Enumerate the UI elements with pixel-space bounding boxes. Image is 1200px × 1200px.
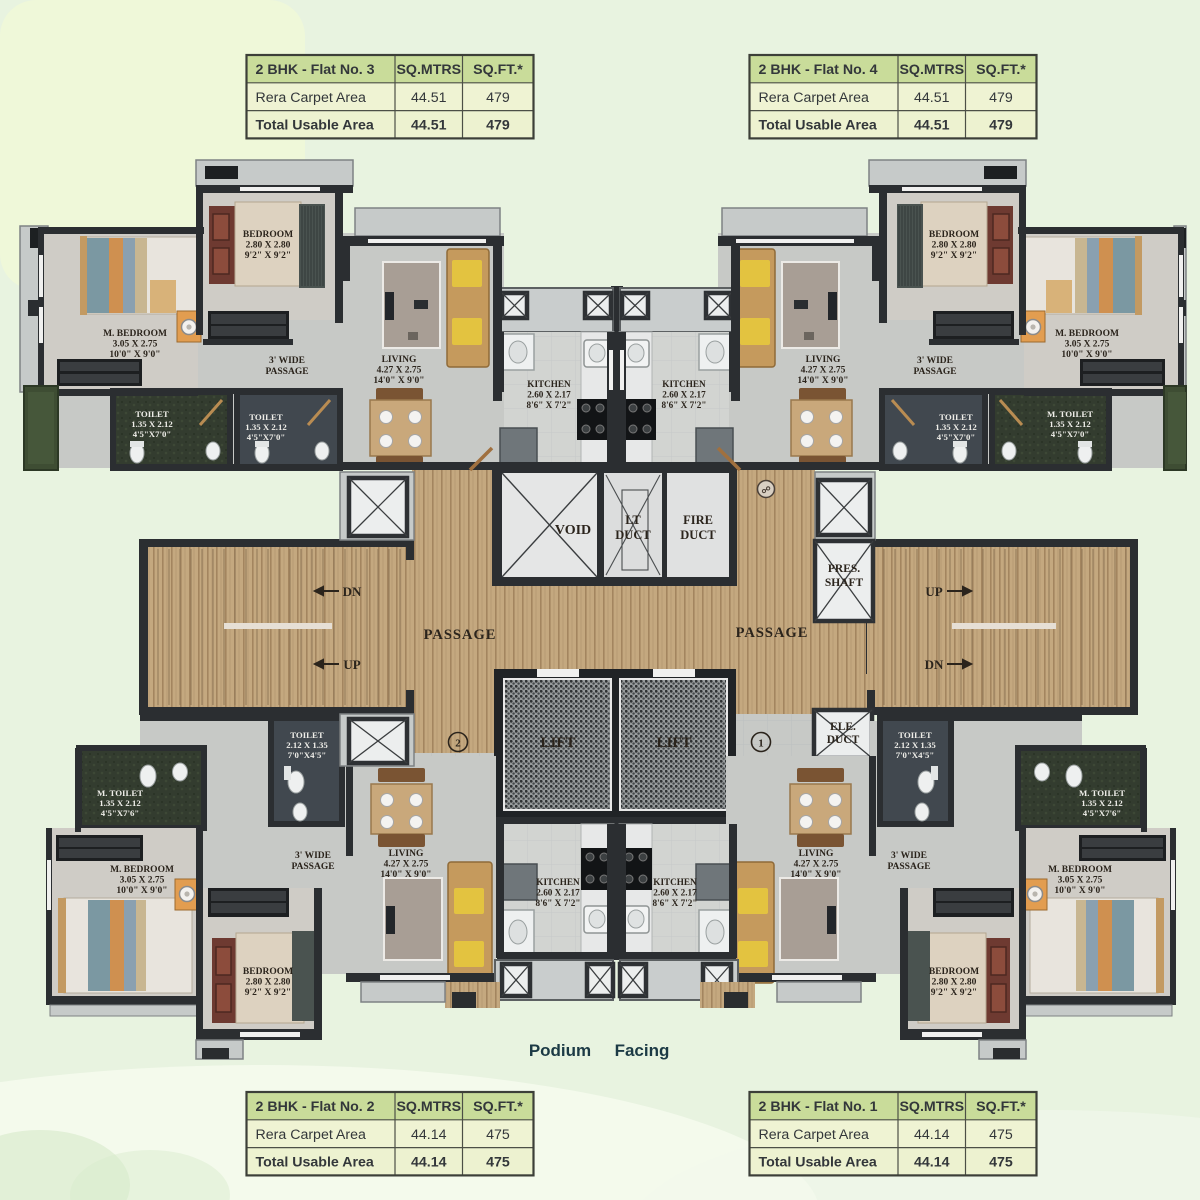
svg-text:7'0"X4'5": 7'0"X4'5" [288,750,327,760]
svg-text:VOID: VOID [555,523,591,538]
svg-text:10'0" X 9'0": 10'0" X 9'0" [109,350,160,360]
svg-text:10'0" X 9'0": 10'0" X 9'0" [116,886,167,896]
svg-text:9'2" X 9'2": 9'2" X 9'2" [931,251,977,261]
svg-text:PRES.: PRES. [828,563,860,575]
svg-text:LIVING: LIVING [389,849,424,859]
svg-text:3.05 X 2.75: 3.05 X 2.75 [120,876,165,886]
svg-text:3.05 X 2.75: 3.05 X 2.75 [113,340,158,350]
svg-text:Rera Carpet Area: Rera Carpet Area [256,90,367,106]
svg-text:M. TOILET: M. TOILET [97,788,143,798]
svg-text:2.80 X 2.80: 2.80 X 2.80 [246,241,291,251]
svg-text:1.35 X 2.12: 1.35 X 2.12 [935,422,977,432]
svg-text:TOILET: TOILET [290,730,324,740]
svg-text:PASSAGE: PASSAGE [913,367,956,377]
svg-text:3' WIDE: 3' WIDE [891,851,927,861]
svg-text:LT: LT [625,513,641,527]
svg-text:BEDROOM: BEDROOM [243,230,293,240]
svg-text:Rera Carpet Area: Rera Carpet Area [256,1127,367,1143]
svg-text:475: 475 [486,1127,510,1143]
svg-text:KITCHEN: KITCHEN [662,379,706,389]
svg-text:2.12 X 1.35: 2.12 X 1.35 [894,740,936,750]
svg-text:BEDROOM: BEDROOM [929,230,979,240]
svg-text:3' WIDE: 3' WIDE [295,851,331,861]
svg-text:SQ.MTRS: SQ.MTRS [396,62,461,78]
svg-text:TOILET: TOILET [898,730,932,740]
svg-text:SQ.FT.*: SQ.FT.* [976,1099,1026,1115]
svg-text:2 BHK - Flat No. 3: 2 BHK - Flat No. 3 [256,62,375,78]
svg-text:475: 475 [989,1127,1013,1143]
svg-text:PASSAGE: PASSAGE [424,627,497,643]
svg-text:M. TOILET: M. TOILET [1047,409,1093,419]
svg-text:LIVING: LIVING [799,849,834,859]
svg-text:2.80 X 2.80: 2.80 X 2.80 [932,978,977,988]
svg-text:4'5"X7'6": 4'5"X7'6" [1083,808,1122,818]
svg-text:KITCHEN: KITCHEN [536,877,580,887]
svg-text:2.80 X 2.80: 2.80 X 2.80 [932,241,977,251]
svg-text:10'0" X 9'0": 10'0" X 9'0" [1054,886,1105,896]
svg-text:M. BEDROOM: M. BEDROOM [1048,865,1112,875]
svg-text:Total Usable Area: Total Usable Area [256,1155,374,1171]
svg-text:3' WIDE: 3' WIDE [269,356,305,366]
svg-text:FIRE: FIRE [683,513,713,527]
svg-text:DN: DN [343,584,362,599]
svg-text:Rera Carpet Area: Rera Carpet Area [759,90,870,106]
svg-text:14'0" X 9'0": 14'0" X 9'0" [373,376,424,386]
svg-text:ELE.: ELE. [830,721,856,733]
svg-text:DUCT: DUCT [827,734,860,746]
svg-text:479: 479 [989,90,1013,106]
svg-text:2.60 X 2.17: 2.60 X 2.17 [527,390,571,400]
svg-text:44.14: 44.14 [914,1127,950,1143]
svg-text:LIVING: LIVING [382,355,417,365]
svg-text:SHAFT: SHAFT [825,577,864,589]
svg-text:PASSAGE: PASSAGE [887,862,930,872]
svg-text:3' WIDE: 3' WIDE [917,356,953,366]
svg-text:3.05 X 2.75: 3.05 X 2.75 [1058,876,1103,886]
svg-text:2 BHK - Flat No. 1: 2 BHK - Flat No. 1 [759,1099,878,1115]
svg-text:M. BEDROOM: M. BEDROOM [1055,329,1119,339]
svg-text:7'0"X4'5": 7'0"X4'5" [896,750,935,760]
svg-text:4'5"X7'0": 4'5"X7'0" [133,429,172,439]
svg-text:2.60 X 2.17: 2.60 X 2.17 [653,888,697,898]
svg-text:8'6" X 7'2": 8'6" X 7'2" [536,898,581,908]
svg-text:SQ.MTRS: SQ.MTRS [396,1099,461,1115]
svg-text:8'6" X 7'2": 8'6" X 7'2" [653,898,698,908]
svg-text:2.80 X 2.80: 2.80 X 2.80 [246,978,291,988]
svg-text:Total Usable Area: Total Usable Area [256,118,374,134]
svg-text:4'5"X7'0": 4'5"X7'0" [937,432,976,442]
svg-text:2 BHK - Flat No. 4: 2 BHK - Flat No. 4 [759,62,878,78]
svg-text:LIVING: LIVING [806,355,841,365]
svg-text:3.05 X 2.75: 3.05 X 2.75 [1065,340,1110,350]
svg-text:PASSAGE: PASSAGE [736,625,809,641]
svg-text:8'6" X 7'2": 8'6" X 7'2" [527,400,572,410]
svg-text:4.27 X 2.75: 4.27 X 2.75 [377,366,422,376]
svg-text:44.51: 44.51 [411,118,447,134]
svg-text:8'6" X 7'2": 8'6" X 7'2" [662,400,707,410]
svg-text:LIFT: LIFT [656,735,691,751]
svg-text:4.27 X 2.75: 4.27 X 2.75 [801,366,846,376]
svg-text:Total Usable Area: Total Usable Area [759,1155,877,1171]
svg-text:KITCHEN: KITCHEN [527,379,571,389]
svg-text:4.27 X 2.75: 4.27 X 2.75 [384,860,429,870]
svg-text:Facing: Facing [615,1041,670,1060]
svg-text:4'5"X7'6": 4'5"X7'6" [101,808,140,818]
svg-text:Podium: Podium [529,1041,591,1060]
svg-text:PASSAGE: PASSAGE [265,367,308,377]
svg-text:479: 479 [486,118,510,134]
svg-text:PASSAGE: PASSAGE [291,862,334,872]
svg-text:4.27 X 2.75: 4.27 X 2.75 [794,860,839,870]
svg-text:1.35 X 2.12: 1.35 X 2.12 [99,798,141,808]
svg-text:44.14: 44.14 [411,1127,447,1143]
svg-text:TOILET: TOILET [249,412,283,422]
svg-text:44.51: 44.51 [914,90,950,106]
svg-text:TOILET: TOILET [135,409,169,419]
svg-text:☍: ☍ [761,485,770,495]
svg-text:Total Usable Area: Total Usable Area [759,118,877,134]
svg-text:2 BHK - Flat No. 2: 2 BHK - Flat No. 2 [256,1099,375,1115]
svg-text:SQ.FT.*: SQ.FT.* [976,62,1026,78]
svg-text:2.60 X 2.17: 2.60 X 2.17 [536,888,580,898]
svg-text:DUCT: DUCT [615,528,651,542]
svg-text:DUCT: DUCT [680,528,716,542]
svg-text:475: 475 [989,1155,1013,1171]
svg-text:TOILET: TOILET [939,412,973,422]
svg-text:LIFT: LIFT [540,735,575,751]
svg-text:9'2" X 9'2": 9'2" X 9'2" [931,988,977,998]
svg-text:44.14: 44.14 [914,1155,950,1171]
svg-text:9'2" X 9'2": 9'2" X 9'2" [245,988,291,998]
svg-text:1.35 X 2.12: 1.35 X 2.12 [131,419,173,429]
svg-text:4'5"X7'0": 4'5"X7'0" [247,432,286,442]
svg-text:475: 475 [486,1155,510,1171]
svg-text:BEDROOM: BEDROOM [929,967,979,977]
svg-text:44.51: 44.51 [411,90,447,106]
svg-text:479: 479 [989,118,1013,134]
svg-text:1.35 X 2.12: 1.35 X 2.12 [1049,419,1091,429]
svg-text:UP: UP [343,657,360,672]
svg-text:SQ.FT.*: SQ.FT.* [473,62,523,78]
svg-text:BEDROOM: BEDROOM [243,967,293,977]
svg-text:DN: DN [925,657,944,672]
svg-text:KITCHEN: KITCHEN [653,877,697,887]
svg-text:9'2" X 9'2": 9'2" X 9'2" [245,251,291,261]
svg-text:10'0" X 9'0": 10'0" X 9'0" [1061,350,1112,360]
svg-text:M. BEDROOM: M. BEDROOM [103,329,167,339]
svg-text:2.60 X 2.17: 2.60 X 2.17 [662,390,706,400]
svg-text:1: 1 [758,738,764,750]
svg-text:M. BEDROOM: M. BEDROOM [110,865,174,875]
svg-text:SQ.MTRS: SQ.MTRS [899,1099,964,1115]
svg-text:4'5"X7'0": 4'5"X7'0" [1051,429,1090,439]
svg-text:SQ.FT.*: SQ.FT.* [473,1099,523,1115]
svg-text:44.51: 44.51 [914,118,950,134]
svg-text:M. TOILET: M. TOILET [1079,788,1125,798]
svg-text:1.35 X 2.12: 1.35 X 2.12 [245,422,287,432]
svg-text:479: 479 [486,90,510,106]
svg-text:1.35 X 2.12: 1.35 X 2.12 [1081,798,1123,808]
svg-text:14'0" X 9'0": 14'0" X 9'0" [797,376,848,386]
svg-text:2.12 X 1.35: 2.12 X 1.35 [286,740,328,750]
svg-text:2: 2 [455,738,461,750]
svg-text:SQ.MTRS: SQ.MTRS [899,62,964,78]
svg-text:UP: UP [925,584,942,599]
svg-text:44.14: 44.14 [411,1155,447,1171]
svg-text:Rera Carpet Area: Rera Carpet Area [759,1127,870,1143]
